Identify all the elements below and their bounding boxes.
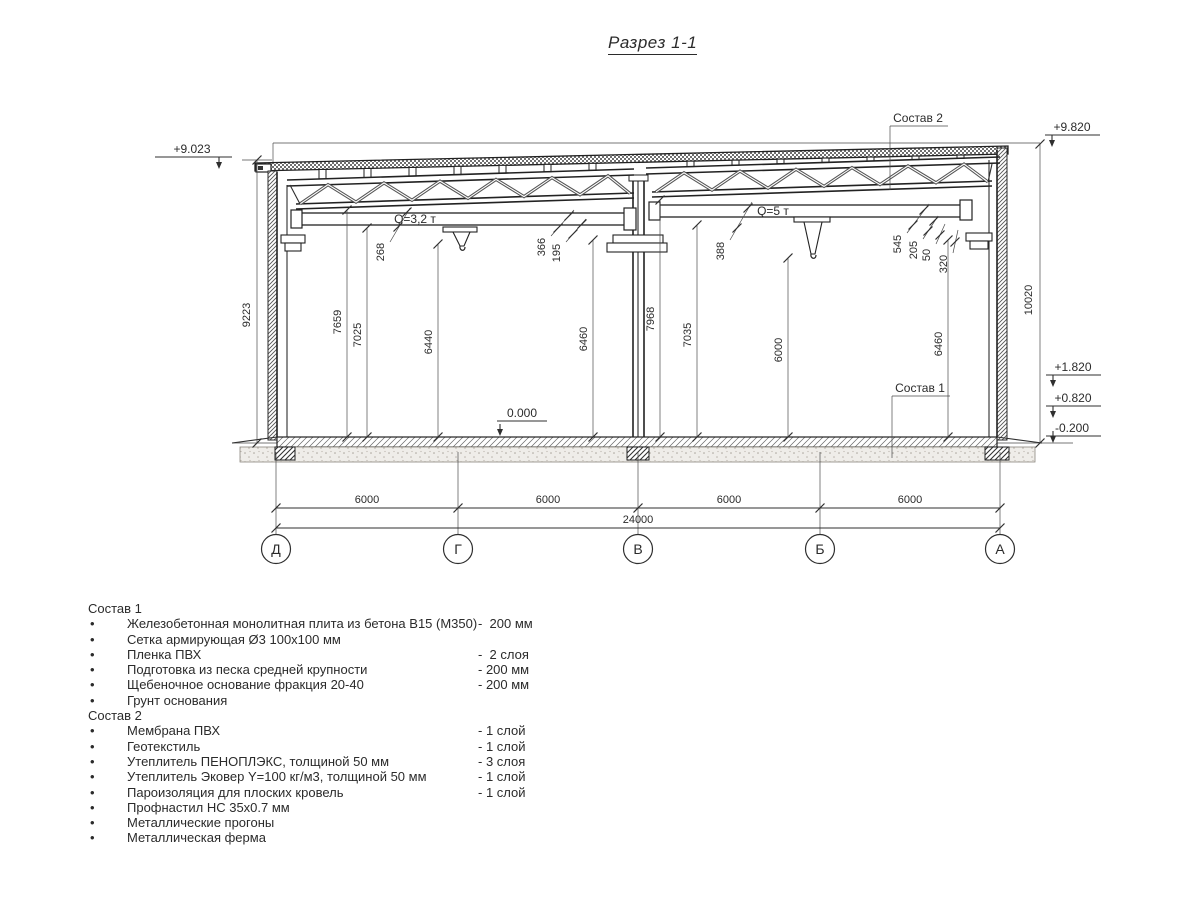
note-value: - 1 слой <box>478 769 526 784</box>
bullet-icon: • <box>90 769 95 784</box>
crane-capacity-right: Q=5 т <box>757 204 789 218</box>
dim-7035: 7035 <box>682 323 694 347</box>
bullet-icon: • <box>90 677 95 692</box>
dim-388: 388 <box>715 242 727 260</box>
dim-7968: 7968 <box>645 307 657 331</box>
axis-label-a: А <box>995 541 1005 557</box>
dim-span-3: 6000 <box>717 494 741 506</box>
truss-right <box>646 157 1000 197</box>
list-item: •Железобетонная монолитная плита из бето… <box>88 616 663 631</box>
note-text: Утеплитель ПЕНОПЛЭКС, толщиной 50 мм <box>127 754 389 769</box>
bottom-dim-chain: 6000 6000 6000 6000 24000 <box>272 452 1005 534</box>
list-item: •Металлическая ферма <box>88 830 663 845</box>
dim-span-1: 6000 <box>355 494 379 506</box>
note-text: Пленка ПВХ <box>127 647 201 662</box>
truss-left <box>287 169 634 209</box>
bullet-icon: • <box>90 723 95 738</box>
dim-wall-right: 10020 <box>1023 140 1045 448</box>
note-text: Металлические прогоны <box>127 815 274 830</box>
floor-slab <box>232 437 1042 462</box>
notes-group1-title: Состав 1 <box>88 601 663 616</box>
dim-span-4: 6000 <box>898 494 922 506</box>
list-item: •Щебеночное основание фракция 20-40- 200… <box>88 677 663 692</box>
dim-545: 545 <box>892 235 904 253</box>
dim-268: 268 <box>375 243 387 261</box>
list-item: •Утеплитель ПЕНОПЛЭКС, толщиной 50 мм- 3… <box>88 754 663 769</box>
note-value: - 1 слой <box>478 739 526 754</box>
bullet-icon: • <box>90 632 95 647</box>
bullet-icon: • <box>90 785 95 800</box>
axis-label-b: Б <box>815 541 824 557</box>
axis-label-d: Д <box>271 541 281 557</box>
note-text: Железобетонная монолитная плита из бетон… <box>127 616 477 631</box>
dim-6460-right: 6460 <box>933 332 945 356</box>
dim-6000-height: 6000 <box>773 338 785 362</box>
dim-wall-left: 9223 <box>241 156 262 448</box>
dim-9223: 9223 <box>241 303 253 327</box>
drawing-sheet: { "title": "Разрез 1-1", "drawing": { "e… <box>0 0 1200 900</box>
elev-floor: 0.000 <box>507 406 537 420</box>
note-text: Металлическая ферма <box>127 830 266 845</box>
note-value: - 200 мм <box>478 662 529 677</box>
note-value: - 200 мм <box>478 616 533 631</box>
elev-right-lower: +0.820 <box>1054 391 1091 405</box>
bullet-icon: • <box>90 662 95 677</box>
left-wall <box>268 171 287 440</box>
dim-366: 366 <box>536 238 548 256</box>
list-item: •Профнастил НС 35х0.7 мм <box>88 800 663 815</box>
bullet-icon: • <box>90 800 95 815</box>
dim-total: 24000 <box>623 514 654 526</box>
bullet-icon: • <box>90 830 95 845</box>
note-value: - 3 слоя <box>478 754 525 769</box>
note-value: - 200 мм <box>478 677 529 692</box>
list-item: •Подготовка из песка средней крупности- … <box>88 662 663 677</box>
note-text: Грунт основания <box>127 693 227 708</box>
list-item: •Пленка ПВХ- 2 слоя <box>88 647 663 662</box>
list-item: •Грунт основания <box>88 693 663 708</box>
elev-right-top: +9.820 <box>1053 120 1090 134</box>
list-item: •Геотекстиль- 1 слой <box>88 739 663 754</box>
bullet-icon: • <box>90 815 95 830</box>
note-text: Геотекстиль <box>127 739 200 754</box>
list-item: •Мембрана ПВХ- 1 слой <box>88 723 663 738</box>
axis-bubbles: Д Г В Б А <box>262 535 1015 564</box>
dim-span-2: 6000 <box>536 494 560 506</box>
dim-205: 205 <box>908 241 920 259</box>
interior-dims: 7659 7025 6440 6460 7968 7035 6000 6460 <box>332 196 953 442</box>
list-item: •Металлические прогоны <box>88 815 663 830</box>
notes-group2-title: Состав 2 <box>88 708 663 723</box>
note-text: Пароизоляция для плоских кровель <box>127 785 344 800</box>
elev-left-top: +9.023 <box>173 142 210 156</box>
elev-right-ground: -0.200 <box>1055 421 1089 435</box>
bullet-icon: • <box>90 616 95 631</box>
sheet-title: Разрез 1-1 <box>608 33 697 55</box>
crane-beam-right <box>649 200 992 258</box>
bullet-icon: • <box>90 693 95 708</box>
bullet-icon: • <box>90 754 95 769</box>
dim-6440: 6440 <box>423 330 435 354</box>
dim-7025: 7025 <box>352 323 364 347</box>
note-text: Мембрана ПВХ <box>127 723 220 738</box>
dim-10020: 10020 <box>1023 285 1035 316</box>
note-text: Подготовка из песка средней крупности <box>127 662 367 677</box>
bullet-icon: • <box>90 647 95 662</box>
comp-roof-label: Состав 2 <box>893 111 943 125</box>
section-drawing: Q=3,2 т Q=5 т Состав 2 Состав 1 +9.023 +… <box>0 90 1200 590</box>
note-value: - 2 слоя <box>478 647 529 662</box>
note-value: - 1 слой <box>478 785 526 800</box>
dim-320: 320 <box>938 255 950 273</box>
note-text: Сетка армирующая Ø3 100х100 мм <box>127 632 341 647</box>
right-wall <box>989 148 1007 440</box>
note-text: Профнастил НС 35х0.7 мм <box>127 800 290 815</box>
list-item: •Утеплитель Эковер Y=100 кг/м3, толщиной… <box>88 769 663 784</box>
dim-50: 50 <box>921 249 933 261</box>
note-text: Щебеночное основание фракция 20-40 <box>127 677 364 692</box>
bullet-icon: • <box>90 739 95 754</box>
axis-label-g: Г <box>454 541 462 557</box>
axis-label-v: В <box>633 541 642 557</box>
comp-floor-label: Состав 1 <box>895 381 945 395</box>
list-item: •Сетка армирующая Ø3 100х100 мм <box>88 632 663 647</box>
note-text: Утеплитель Эковер Y=100 кг/м3, толщиной … <box>127 769 427 784</box>
dim-7659: 7659 <box>332 310 344 334</box>
composition-notes: Состав 1 •Железобетонная монолитная плит… <box>88 601 663 846</box>
elev-right-upper: +1.820 <box>1054 360 1091 374</box>
crane-beam-left <box>281 208 667 252</box>
list-item: •Пароизоляция для плоских кровель- 1 сло… <box>88 785 663 800</box>
dim-195: 195 <box>551 244 563 262</box>
dim-6460-left: 6460 <box>578 327 590 351</box>
note-value: - 1 слой <box>478 723 526 738</box>
